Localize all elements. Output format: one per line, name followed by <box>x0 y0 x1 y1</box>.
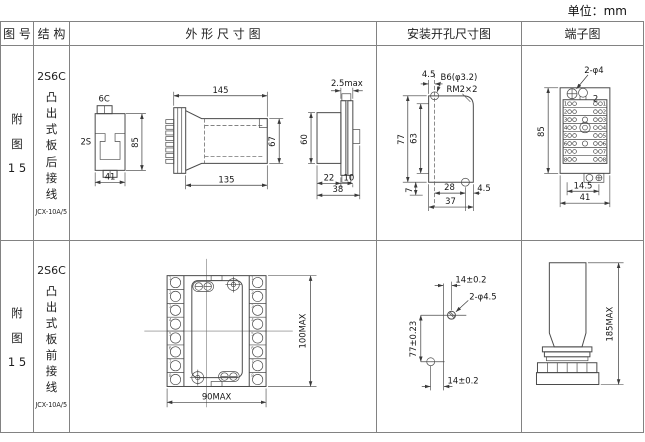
cell-number: 4 <box>169 318 172 323</box>
cell-number: 3 <box>251 304 254 309</box>
figure-no-row2: 附 图 1 5 <box>1 241 34 432</box>
dim-label: 77 <box>396 134 406 145</box>
terminal-cell-row1: 2 2-φ4 1 2 3 4 5 6 7 8 <box>522 46 643 241</box>
terminal-number: 1 <box>603 102 606 108</box>
structure-model: 2S6C <box>37 70 66 83</box>
terminal-number: 8 <box>564 157 568 163</box>
dim-label: 41 <box>580 192 591 202</box>
terminal-number: 1 <box>564 102 567 108</box>
terminal-number: 8 <box>603 157 607 163</box>
outline-cell-row2: 1 2 3 4 5 6 7 8 1 2 3 4 5 6 7 8 <box>70 241 377 432</box>
dim-label: 2 <box>593 94 598 104</box>
terminal-row-numbers-right: 1 2 3 4 5 6 7 8 <box>603 102 607 164</box>
terminal-drawing-front-wiring: 185MAX <box>522 241 643 432</box>
dim-label: 145 <box>212 85 228 95</box>
terminal-number: 2 <box>564 110 567 116</box>
terminal-number: 3 <box>564 118 568 124</box>
front-view: 145 135 67 <box>166 85 283 190</box>
terminal-drawing-rear-wiring: 2 2-φ4 1 2 3 4 5 6 7 8 <box>522 46 643 240</box>
dimension-table: 图 号 结 构 外 形 尺 寸 图 安装开孔尺寸图 端子图 附 图 1 5 2S… <box>0 21 644 433</box>
corner-callout: RM2×2 <box>447 84 478 94</box>
figure-no-char: 1 5 <box>8 161 26 175</box>
terminal-number: 4 <box>564 126 568 132</box>
dim-label: 85 <box>536 126 546 137</box>
header-structure-label: 结 构 <box>38 25 66 42</box>
structure-model: 2S6C <box>37 264 66 277</box>
dim-label: 2.5max <box>331 78 363 88</box>
figure-no-char: 图 <box>11 330 23 346</box>
terminal-row-numbers-left: 1 2 3 4 5 6 7 8 <box>564 102 568 164</box>
dim-label: 22 <box>324 172 335 182</box>
cell-number: 8 <box>169 373 172 378</box>
outline-drawing-rear-wiring: 6C 2S 85 41 <box>70 46 376 240</box>
structure-row2: 2S6C 凸出式板前接线 JCX-10A/5 <box>34 241 70 432</box>
hole-callout: B6(φ3.2) <box>441 72 478 82</box>
cell-number: 5 <box>169 332 172 337</box>
terminal-number: 5 <box>564 134 567 140</box>
terminal-number: 7 <box>603 149 607 155</box>
side-profile-view: 6C 2S 85 41 <box>80 94 145 187</box>
cell-number: 2 <box>251 290 254 295</box>
structure-product-code: JCX-10A/5 <box>36 208 68 216</box>
cell-number: 1 <box>251 276 254 281</box>
dim-label: 4.5 <box>477 183 490 193</box>
terminal-number: 2 <box>603 110 606 116</box>
dim-label: 100MAX <box>298 313 308 348</box>
dim-label: 28 <box>444 182 455 192</box>
structure-product-code: JCX-10A/5 <box>36 401 68 409</box>
header-figure-no: 图 号 <box>1 22 34 46</box>
dim-label: 77±0.23 <box>408 321 418 357</box>
dim-label: 41 <box>105 171 116 181</box>
header-mounting-label: 安装开孔尺寸图 <box>407 25 491 42</box>
dim-label: 2S <box>80 136 91 146</box>
terminal-cell-numbers: 1 2 3 4 5 6 7 8 1 2 3 4 5 6 7 8 <box>169 276 254 378</box>
terminal-number: 7 <box>564 149 568 155</box>
cell-number: 7 <box>169 359 172 364</box>
hole-callout: 2-φ4 <box>584 65 603 75</box>
dim-label: 14±0.2 <box>455 275 486 285</box>
terminal-number: 4 <box>603 126 607 132</box>
terminal-number: 6 <box>564 141 568 147</box>
cell-number: 6 <box>169 345 172 350</box>
mounting-drawing-front-wiring: 14±0.2 2-φ4.5 77±0.23 14±0.2 <box>377 241 521 432</box>
dim-label: 185MAX <box>605 306 615 341</box>
header-structure: 结 构 <box>34 22 70 46</box>
mounting-cell-row1: 4.5 B6(φ3.2) RM2×2 77 63 7 <box>377 46 522 241</box>
figure-no-row1: 附 图 1 5 <box>1 46 34 241</box>
outline-cell-row1: 6C 2S 85 41 <box>70 46 377 241</box>
header-terminal: 端子图 <box>522 22 643 46</box>
cell-number: 5 <box>251 332 254 337</box>
terminal-number: 3 <box>603 118 607 124</box>
header-outline: 外 形 尺 寸 图 <box>70 22 377 46</box>
header-outline-label: 外 形 尺 寸 图 <box>185 25 260 42</box>
dim-label: 14±0.2 <box>448 376 479 386</box>
cell-number: 7 <box>251 359 254 364</box>
datasheet-page: 单位：mm 图 号 结 构 外 形 尺 寸 图 安装开孔尺寸图 端子图 附 图 … <box>0 0 645 442</box>
dim-label: 10 <box>343 172 354 182</box>
dim-label: 67 <box>267 136 277 147</box>
structure-row1: 2S6C 凸出式板后接线 JCX-10A/5 <box>34 46 70 241</box>
unit-label: 单位：mm <box>568 2 627 19</box>
cell-number: 6 <box>251 345 254 350</box>
dim-label: 85 <box>130 137 140 148</box>
cell-number: 2 <box>169 290 172 295</box>
mounting-drawing-rear-wiring: 4.5 B6(φ3.2) RM2×2 77 63 7 <box>377 46 521 240</box>
dim-label: 6C <box>98 94 109 104</box>
terminal-cell-row2: 185MAX <box>522 241 643 432</box>
header-terminal-label: 端子图 <box>564 25 600 42</box>
dim-label: 14.5 <box>574 180 593 190</box>
dim-label: 90MAX <box>202 391 232 401</box>
terminal-number: 6 <box>603 141 607 147</box>
structure-mount-type: 凸出式板前接线 <box>45 283 59 396</box>
mounting-cell-row2: 14±0.2 2-φ4.5 77±0.23 14±0.2 <box>377 241 522 432</box>
cell-number: 3 <box>169 304 172 309</box>
figure-no-char: 1 5 <box>8 355 26 369</box>
cell-number: 4 <box>251 318 254 323</box>
dim-label: 4.5 <box>422 69 435 79</box>
structure-mount-type: 凸出式板后接线 <box>45 89 59 202</box>
cell-number: 8 <box>251 373 254 378</box>
terminal-number: 5 <box>603 134 606 140</box>
figure-no-char: 图 <box>11 136 23 152</box>
dim-label: 63 <box>409 133 419 144</box>
outline-drawing-front-wiring: 1 2 3 4 5 6 7 8 1 2 3 4 5 6 7 8 <box>70 241 376 432</box>
dim-label: 60 <box>299 134 309 145</box>
header-mounting: 安装开孔尺寸图 <box>377 22 522 46</box>
figure-no-char: 附 <box>11 111 23 127</box>
header-figure-no-label: 图 号 <box>3 25 31 42</box>
figure-no-char: 附 <box>11 305 23 321</box>
dim-label: 7 <box>404 187 414 192</box>
hole-callout: 2-φ4.5 <box>469 291 496 301</box>
dim-label: 37 <box>445 196 456 206</box>
panel-side-view: 2.5max 60 22 10 38 <box>299 78 363 199</box>
dim-label: 38 <box>333 184 344 194</box>
cell-number: 1 <box>169 276 172 281</box>
dim-label: 135 <box>218 174 234 184</box>
